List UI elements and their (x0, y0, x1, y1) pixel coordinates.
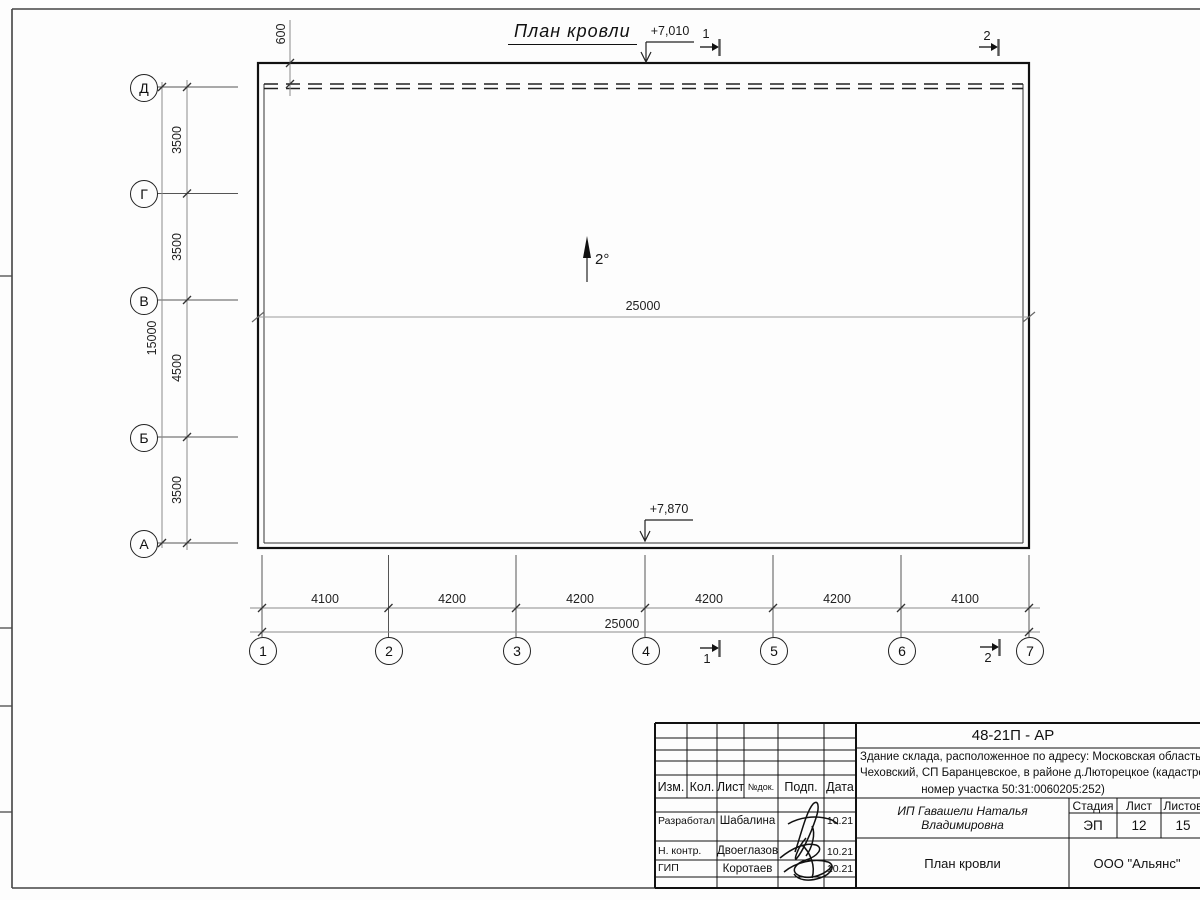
column-data: Дата (824, 776, 856, 797)
row-developer-date: 10.21 (824, 814, 856, 828)
elevation-mark-bottom (640, 520, 693, 541)
section-marks (700, 39, 1000, 657)
row-gip-date: 10.21 (824, 862, 856, 876)
dim-col-4: 4200 (669, 592, 749, 606)
slope-label: 2° (595, 251, 609, 268)
row-ncontr-role: Н. контр. (658, 845, 701, 857)
stage-header: Стадия (1069, 798, 1117, 813)
dim-row-2: 3500 (170, 233, 184, 261)
elevation-top-label: +7,010 (644, 24, 696, 38)
row-ncontr-name: Двоеглазов (717, 843, 778, 859)
axis-row-v: В (130, 287, 158, 315)
dim-overhang: 600 (274, 24, 288, 45)
slope-arrow (583, 236, 591, 282)
axis-col-1: 1 (249, 637, 277, 665)
row-gip-role: ГИП (658, 862, 679, 874)
axis-row-d-label: Д (139, 80, 148, 96)
description-line-1: Здание склада, расположенное по адресу: … (860, 751, 1200, 763)
column-izm: Изм. (655, 776, 687, 797)
axis-row-a-label: А (139, 536, 148, 552)
description-line-3: номер участка 50:31:0060205:252) (856, 782, 1170, 797)
row-developer-name: Шабалина (717, 812, 778, 830)
left-dimension-lines (157, 20, 294, 550)
elevation-bottom-label: +7,870 (643, 502, 695, 516)
axis-row-v-label: В (139, 293, 148, 309)
dim-row-3: 4500 (170, 354, 184, 382)
stage-value: ЭП (1069, 813, 1117, 838)
axis-row-a: А (130, 530, 158, 558)
section-number-bottom-1: 1 (699, 651, 715, 666)
sheet-header: Лист (1117, 798, 1161, 813)
column-list: Лист (717, 776, 744, 797)
dim-col-6: 4100 (925, 592, 1005, 606)
ridge-dimension-line (252, 312, 1035, 322)
axis-col-2-label: 2 (385, 643, 393, 659)
dim-row-total: 15000 (145, 321, 159, 356)
description-line-2: Чеховский, СП Баранцевское, в районе д.Л… (860, 767, 1200, 779)
sheets-header: Листов (1161, 798, 1200, 813)
column-podp: Подп. (778, 776, 824, 797)
section-number-bottom-2: 2 (980, 650, 996, 665)
dim-row-4: 3500 (170, 476, 184, 504)
elevation-mark-top (641, 42, 694, 62)
axis-row-b-label: Б (139, 430, 148, 446)
page-title: План кровли (508, 21, 637, 45)
axis-row-g-label: Г (140, 186, 148, 202)
axis-row-b: Б (130, 424, 158, 452)
section-number-top-2: 2 (979, 28, 995, 43)
dim-row-1: 3500 (170, 126, 184, 154)
column-ndok: №док. (744, 776, 778, 797)
axis-row-d: Д (130, 74, 158, 102)
row-developer-role: Разработал (658, 815, 715, 827)
client-name: ИП Гавашели Наталья Владимировна (856, 798, 1069, 838)
axis-col-5-label: 5 (770, 643, 778, 659)
axis-row-g: Г (130, 180, 158, 208)
axis-col-4: 4 (632, 637, 660, 665)
dim-col-5: 4200 (797, 592, 877, 606)
ridge-dimension-label: 25000 (593, 299, 693, 313)
project-code: 48-21П - АР (856, 723, 1170, 748)
dim-col-total: 25000 (572, 617, 672, 631)
axis-col-6: 6 (888, 637, 916, 665)
dim-col-2: 4200 (412, 592, 492, 606)
sheet-number: 12 (1117, 813, 1161, 838)
axis-col-2: 2 (375, 637, 403, 665)
dim-col-1: 4100 (285, 592, 365, 606)
axis-col-7-label: 7 (1026, 643, 1034, 659)
row-gip-name: Коротаев (717, 861, 778, 877)
hidden-wall-line (264, 84, 1023, 89)
axis-col-1-label: 1 (259, 643, 267, 659)
section-mark-top-1 (700, 39, 720, 56)
axis-col-3-label: 3 (513, 643, 521, 659)
company-name: ООО "Альянс" (1069, 838, 1200, 888)
axis-col-3: 3 (503, 637, 531, 665)
dim-col-3: 4200 (540, 592, 620, 606)
sheets-total: 15 (1161, 813, 1200, 838)
drawing-sheet: План кровли +7,010 +7,870 1 2 1 2 2° 250… (0, 0, 1200, 900)
row-ncontr-date: 10.21 (824, 845, 856, 859)
column-kol: Кол. (687, 776, 717, 797)
section-number-top-1: 1 (698, 26, 714, 41)
drawing-name: План кровли (856, 838, 1069, 888)
axis-col-6-label: 6 (898, 643, 906, 659)
axis-col-5: 5 (760, 637, 788, 665)
axis-col-7: 7 (1016, 637, 1044, 665)
axis-col-4-label: 4 (642, 643, 650, 659)
